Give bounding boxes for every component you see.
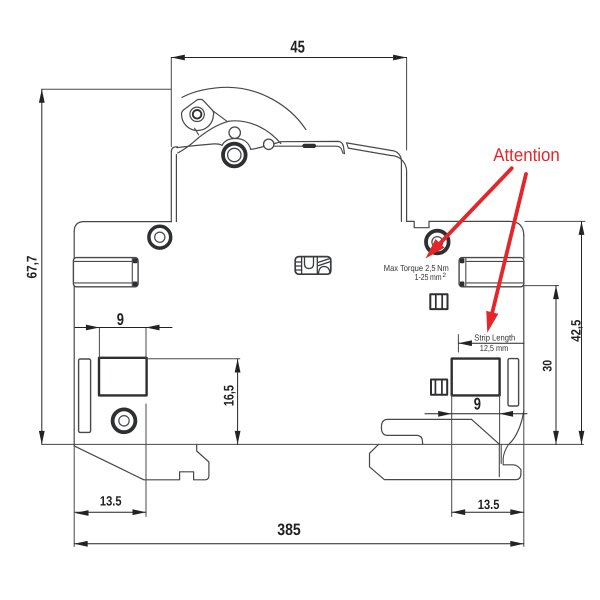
svg-text:9: 9 xyxy=(474,395,481,414)
svg-text:30: 30 xyxy=(541,360,555,372)
svg-text:1-25 mm: 1-25 mm xyxy=(415,272,442,282)
svg-text:13.5: 13.5 xyxy=(478,497,500,512)
svg-text:385: 385 xyxy=(277,521,301,539)
svg-text:42,5: 42,5 xyxy=(568,319,583,341)
svg-text:13.5: 13.5 xyxy=(100,493,122,508)
svg-text:2: 2 xyxy=(443,272,447,279)
svg-text:Strip Length: Strip Length xyxy=(474,332,515,342)
svg-text:9: 9 xyxy=(117,310,124,329)
svg-text:Attention: Attention xyxy=(493,144,560,165)
svg-text:67,7: 67,7 xyxy=(24,255,40,278)
svg-text:45: 45 xyxy=(290,38,305,57)
svg-text:16,5: 16,5 xyxy=(221,385,237,406)
svg-text:12,5 mm: 12,5 mm xyxy=(480,343,509,353)
